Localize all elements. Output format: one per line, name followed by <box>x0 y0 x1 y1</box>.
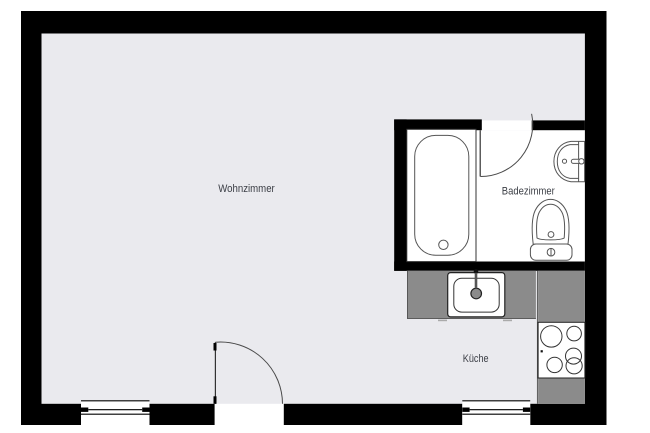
svg-text:Wohnzimmer: Wohnzimmer <box>218 183 275 195</box>
svg-text:Küche: Küche <box>463 353 489 365</box>
svg-text:Badezimmer: Badezimmer <box>502 185 555 197</box>
